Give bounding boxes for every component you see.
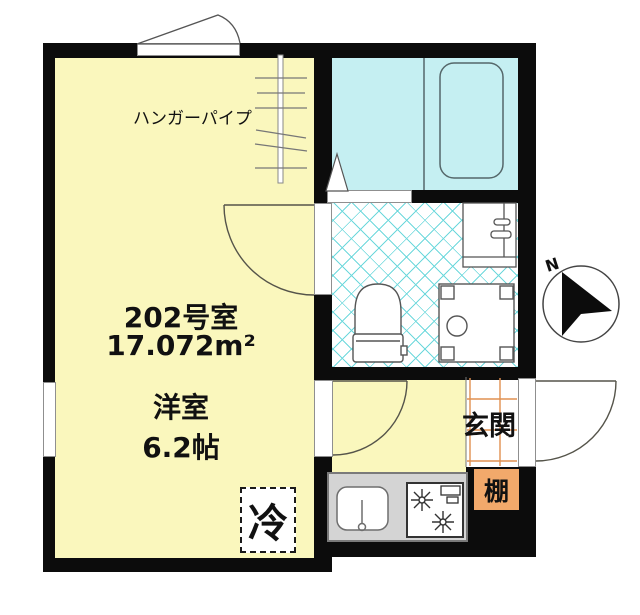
bathtub bbox=[440, 63, 503, 178]
compass-north-label: N bbox=[543, 254, 562, 276]
entrance-label: 玄関 bbox=[454, 404, 524, 443]
bath-door-icon bbox=[326, 154, 348, 191]
hanger-pipe bbox=[255, 55, 307, 183]
window-swing-icon bbox=[137, 15, 240, 44]
stove bbox=[407, 483, 463, 537]
room-area-label: 17.072m² bbox=[61, 329, 301, 362]
compass: N bbox=[543, 254, 619, 342]
room-size-label: 6.2帖 bbox=[61, 426, 301, 466]
floor-plan: 棚 冷 bbox=[0, 0, 640, 615]
entrance-door-swing bbox=[536, 381, 616, 461]
toilet bbox=[353, 284, 407, 362]
washroom-door-swing bbox=[224, 205, 314, 295]
room-type-label: 洋室 bbox=[61, 386, 301, 426]
kitchen-sink bbox=[337, 487, 388, 531]
washing-machine-pan bbox=[439, 284, 514, 362]
washbasin bbox=[463, 203, 516, 267]
hallway-door-swing bbox=[333, 381, 407, 455]
hanger-pipe-label: ハンガーパイプ bbox=[133, 104, 252, 129]
